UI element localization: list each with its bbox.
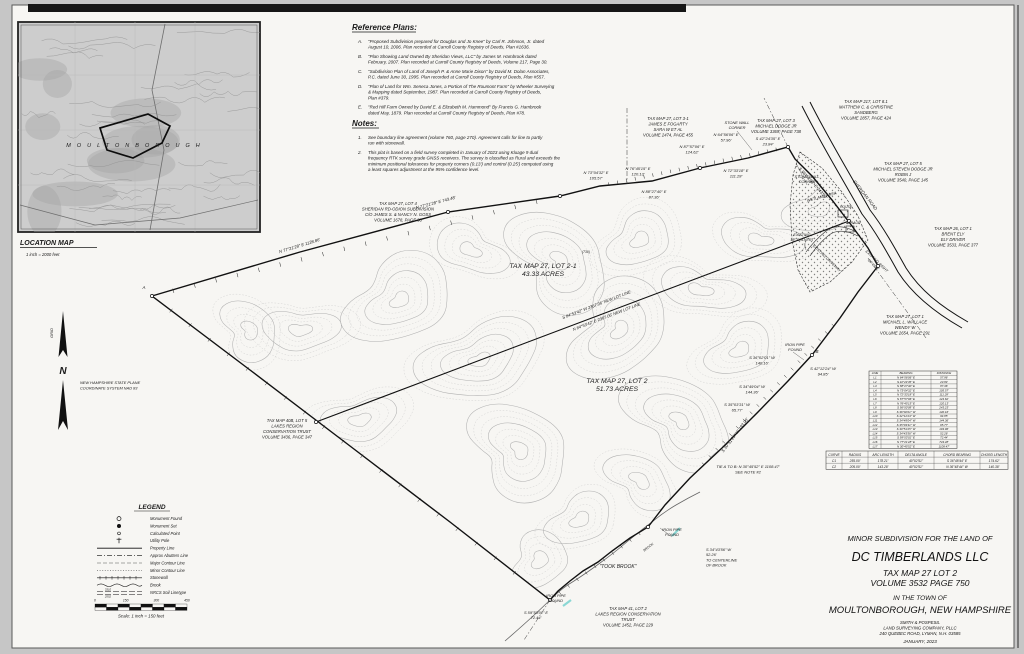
- map-label-line: "TOOK BROOK": [599, 564, 636, 570]
- map-label-line: TAX MAP 27, LOT 2: [586, 378, 647, 385]
- map-label-line: TAX MAP 27, LOT 3: [757, 118, 795, 123]
- scale-bar-tick: 450: [184, 599, 190, 603]
- notes-item-line: frequency RTK survey grade GNSS receiver…: [368, 156, 560, 161]
- legend-symbol-circle-filled: [117, 524, 121, 528]
- monument-marker: [810, 353, 813, 356]
- map-label-line: S 36°02'01" W: [749, 355, 776, 360]
- map-label-line: CONSERVATION TRUST: [263, 429, 311, 434]
- legend-soil-bottom: 2552: [104, 594, 112, 598]
- map-label-line: SARA W ET AL: [653, 127, 683, 132]
- map-label-line: TAX MAP 26, LOT 1: [934, 226, 972, 231]
- notes-item-id: 1.: [358, 135, 362, 140]
- monument-marker: [314, 420, 317, 423]
- line_table-cell: L17: [873, 444, 878, 448]
- map-label-line: OF BROOK: [706, 563, 727, 568]
- map-label-line: MICHAEL STEVEN DODGE JR: [873, 167, 932, 172]
- map-label-line: FOUND: [549, 598, 563, 603]
- curve_table-cell: 174.62': [989, 459, 1000, 463]
- map-label-line: TAX MAP 27, LOT 3-1: [647, 116, 688, 121]
- legend-item-label: Major Contour Line: [150, 560, 186, 565]
- scale-bar-cell: [141, 604, 153, 607]
- map-label-line: ELY DRIVER: [941, 237, 965, 242]
- scale-bar-cell: [95, 604, 107, 607]
- map-label: TAX MAP 40B, LOT 5LAKES REGIONCONSERVATI…: [262, 418, 313, 440]
- location-map-scale: 1 inch = 2000 feet: [26, 252, 60, 257]
- title-surveyor-3: 240 QUEBEC ROAD, LYMAN, N.H. 03585: [878, 631, 961, 636]
- datum-line-2: COORDINATE SYSTEM NAD 83: [80, 385, 138, 390]
- map-label-line: LAKES REGION: [271, 424, 303, 429]
- legend-item-label: Property Line: [150, 546, 175, 551]
- plat-sheet: MOULTONBOROUGH LOCATION MAP 1 inch = 200…: [0, 0, 1024, 654]
- curve_table-cell: S 36°48'44" E: [947, 459, 968, 463]
- map-label-line: VOLUME 2654, PAGE 291: [880, 331, 930, 336]
- scale-bar-tick: 150: [123, 599, 129, 603]
- monument-marker: [446, 210, 449, 213]
- map-label-line: N 72°33'18" E: [724, 168, 749, 173]
- map-label-line: (730): [582, 250, 590, 254]
- reference_plans-item-line: "Proposed Subdivision prepared for Dougl…: [368, 39, 545, 44]
- map-label-line: 120.13': [632, 171, 645, 176]
- map-label-line: N 87°57'06" E: [680, 144, 705, 149]
- reference_plans-item-line: Plan #379.: [368, 95, 390, 100]
- map-label-line: B: [815, 349, 818, 354]
- reference_plans-item-line: "Subdivision Plan of Land of Joseph P. &…: [368, 69, 550, 74]
- north-arrow-grid-label: GRID: [49, 328, 54, 338]
- curve_table-cell: 140.38': [989, 465, 1000, 469]
- map-label: A: [141, 285, 145, 290]
- curve_table-cell: 205.00': [849, 465, 861, 469]
- notes-item-line: This plat is based on a field survey com…: [368, 150, 539, 155]
- legend-title: LEGEND: [138, 504, 165, 511]
- notes-heading: Notes:: [352, 119, 377, 128]
- map-label-line: TAX MAP 41, LOT 2: [609, 606, 647, 611]
- reference_plans-item-line: "Plan Showing Land Owned By Sheridan Vie…: [368, 54, 537, 59]
- map-label-line: TAX MAP 27, LOT 1: [886, 314, 924, 319]
- reference_plans-item-line: dated May, 1879. Plan recorded at Carrol…: [368, 110, 525, 115]
- map-label-line: 18" CULVERT: [790, 238, 814, 242]
- reference_plans-item-id: E.: [358, 105, 362, 110]
- title-line1: MINOR SUBDIVISION FOR THE LAND OF: [847, 534, 992, 543]
- map-label-line: EXISTING: [793, 233, 810, 237]
- map-label-line: CORNER: [799, 179, 816, 184]
- curve_table-cell: 40°02'51": [909, 465, 924, 469]
- map-label-line: A: [141, 285, 145, 290]
- scale-bar-cell: [153, 607, 165, 610]
- legend-item-label: Approx Abutters Line: [149, 553, 189, 558]
- legend-item-label: Minor Contour Line: [150, 568, 186, 573]
- map-label-line: VOLUME 1452, PAGE 229: [603, 623, 654, 628]
- map-label-line: MICHAEL DODGE JR: [755, 124, 796, 129]
- curve_table-cell: N 36°48'44" W: [946, 465, 968, 469]
- map-label-line: N 73°04'32" E: [584, 170, 609, 175]
- map-label-line: TAX MAP 40B, LOT 5: [267, 418, 308, 423]
- map-label-line: 140.16': [756, 360, 769, 365]
- map-label: HOUSE: [840, 205, 853, 209]
- scale-bar-cell: [164, 604, 176, 607]
- map-label-line: 23.84': [762, 141, 774, 146]
- scale-bar-cell: [95, 607, 107, 610]
- map-label-line: TAX MAP 27, LOT 5: [884, 161, 922, 166]
- reference_plans-heading: Reference Plans:: [352, 23, 417, 32]
- map-label-line: 65.77': [732, 407, 743, 412]
- legend-item-label: Utility Pole: [150, 538, 170, 543]
- curve_table-header: DELTA ANGLE: [905, 453, 928, 457]
- map-label-line: MICHAEL L. WALLACE: [883, 320, 928, 325]
- location-map-shading: [87, 148, 144, 174]
- legend-item-label: Monument Set: [150, 523, 177, 528]
- legend-item-label: NRCS Soil Linetype: [150, 590, 187, 595]
- map-label-line: N 64°56'06" E: [714, 132, 739, 137]
- map-label-line: 57.96': [721, 137, 732, 142]
- map-label-line: VOLUME 3533, PAGE 377: [928, 243, 979, 248]
- scale-bar-tick: 0: [94, 599, 96, 603]
- scale-bar-cell: [118, 607, 130, 610]
- legend-item-label: Calculated Point: [150, 531, 181, 536]
- legend-item-label: Stonewall: [150, 575, 168, 580]
- map-label: (730): [582, 250, 590, 254]
- notes-item-line: minimum positional tolerances for proper…: [368, 161, 554, 166]
- map-label-line: N 76°45'15" E: [626, 166, 651, 171]
- map-label-line: 124.62': [686, 149, 699, 154]
- scale-bar-cell: [164, 607, 176, 610]
- curve_table-cell: C1: [832, 459, 836, 463]
- map-label-line: GARAGE: [846, 221, 861, 225]
- curve_table-header: CHORD BEARING: [943, 453, 971, 457]
- map-label-line: 72.44': [531, 615, 542, 620]
- map-label-line: 105.57': [590, 175, 603, 180]
- title-surveyor-2: LAND SURVEYING COMPANY, PLLC: [883, 626, 957, 631]
- map-label-line: 111.28': [730, 173, 743, 178]
- reference_plans-item-line: "Plan of Land for Wm. Seneca Jones, a Po…: [368, 84, 555, 89]
- notes-item-line: a least squares adjustment at the 95% co…: [368, 167, 479, 172]
- map-label-line: 43.33 ACRES: [522, 271, 565, 278]
- line-table: LINEBEARINGDISTANCEL1N 64°56'06" E57.96'…: [869, 371, 957, 448]
- reference_plans-item-id: D.: [358, 84, 363, 89]
- title-date: JANUARY, 2023: [902, 639, 937, 644]
- map-label-line: FOUND: [665, 532, 679, 537]
- legend-soil-top: 3310: [105, 588, 112, 592]
- reference_plans-item-line: August 10, 2006. Plan recorded at Carrol…: [367, 45, 530, 50]
- reference_plans-item-line: February, 2007. Plan recorded at Carroll…: [368, 60, 548, 65]
- map-label: B: [815, 349, 818, 354]
- legend-scale-text: Scale: 1 inch = 150 feet: [118, 614, 165, 619]
- monument-marker: [558, 194, 561, 197]
- title-surveyor-1: SMITH & POSPESIL: [900, 620, 940, 625]
- curve_table-header: CHORD LENGTH: [981, 453, 1008, 457]
- map-label-line: BRENT ELY: [942, 232, 966, 237]
- datum-line-1: NEW HAMPSHIRE STATE PLANE: [80, 380, 141, 385]
- location-map-town-label: MOULTONBOROUGH: [66, 143, 205, 149]
- curve_table-cell: 255.00': [849, 459, 861, 463]
- monument-marker: [646, 525, 649, 528]
- title-town-intro: IN THE TOWN OF: [893, 595, 948, 602]
- curve_table-cell: 178.21': [878, 459, 889, 463]
- scale-bar-cell: [118, 604, 130, 607]
- map-label-line: S 42°12'24" W: [810, 366, 837, 371]
- map-label-line: JAMES E FOGARTY: [647, 122, 688, 127]
- line_table-cell: 1108.47': [939, 444, 950, 448]
- map-label-line: VOLUME 1678, PAGE 33: [374, 218, 422, 223]
- map-label-line: 94.85': [818, 371, 829, 376]
- legend-item-label: Monument Found: [150, 516, 183, 521]
- title-lot: TAX MAP 27 LOT 2: [883, 568, 957, 578]
- curve_table-header: ARC LENGTH: [871, 453, 894, 457]
- monument-marker: [786, 145, 789, 148]
- map-label-line: VOLUME 2474, PAGE 455: [643, 133, 694, 138]
- curve_table-cell: 143.28': [878, 465, 889, 469]
- map-label-line: CORNER: [729, 125, 746, 130]
- legend-item-label: Brook: [150, 583, 162, 588]
- sheet-top-edge-bar: [28, 4, 686, 12]
- map-label-line: S 42°24'35" E: [756, 136, 781, 141]
- curve_table-header: CURVE: [828, 453, 840, 457]
- map-label-line: FOUND: [788, 347, 802, 352]
- scale-bar-cell: [153, 604, 165, 607]
- map-label-line: WENDY W: [895, 325, 917, 330]
- map-label-line: N 88°27'40" E: [642, 189, 667, 194]
- title-owner: DC TIMBERLANDS LLC: [852, 550, 990, 564]
- map-label-line: VOLUME 2857, PAGE 424: [841, 116, 892, 121]
- map-label-line: 51.73 ACRES: [596, 386, 639, 393]
- map-label: GARAGE: [846, 221, 861, 225]
- scale-bar-cell: [176, 604, 188, 607]
- reference_plans-item-line: & Mapping dated September, 1987. Plan re…: [368, 90, 541, 95]
- map-label-line: VOLUME 3540, PAGE 145: [878, 178, 929, 183]
- location-map-shading: [25, 113, 60, 140]
- map-label-line: ROBIN J: [895, 172, 912, 177]
- scale-bar-cell: [107, 607, 119, 610]
- location-map-title: LOCATION MAP: [20, 240, 74, 247]
- map-label-line: MATTHEW C. & CHRISTINE: [839, 105, 893, 110]
- scale-bar-cell: [107, 604, 119, 607]
- reference_plans-item-line: "Red Hill Farm Owned by David E. & Eliza…: [368, 105, 542, 110]
- monument-marker: [150, 294, 153, 297]
- reference_plans-item-id: C.: [358, 69, 363, 74]
- curve_table-cell: C2: [832, 465, 836, 469]
- line_table-cell: N 30°45'52" E: [897, 444, 915, 448]
- scale-bar-cell: [130, 607, 142, 610]
- scale-bar-cell: [130, 604, 142, 607]
- monument-marker: [698, 166, 701, 169]
- map-label-line: VOLUME 3369, PAGE 738: [751, 129, 802, 134]
- reference_plans-item-id: A.: [357, 39, 362, 44]
- map-label-line: HOUSE: [840, 205, 853, 209]
- curve_table-cell: 40°02'51": [909, 459, 924, 463]
- map-label-line: SANDBERG: [854, 110, 878, 115]
- map-label-line: TRUST: [621, 617, 635, 622]
- map-label-line: TAX MAP 217, LOT 8.1: [844, 99, 888, 104]
- scale-bar-tick: 300: [153, 599, 159, 603]
- map-label-line: C/O JAMES S. & NANCY N. GOSS: [365, 212, 431, 217]
- map-label-line: S 34°49'04" W: [739, 384, 766, 389]
- title-town: MOULTONBOROUGH, NEW HAMPSHIRE: [829, 605, 1012, 616]
- curve_table-header: RADIUS: [849, 453, 862, 457]
- notes-item-id: 2.: [357, 150, 362, 155]
- map-label-line: VOLUME 3436, PAGE 347: [262, 435, 313, 440]
- map-label-line: TAX MAP 27, LOT 4: [379, 201, 417, 206]
- location-map-shading: [43, 70, 72, 98]
- scale-bar-cell: [176, 607, 188, 610]
- map-label-line: SEE NOTE #2: [735, 469, 762, 474]
- map-label: "TOOK BROOK": [599, 564, 636, 570]
- map-label-line: 87.36': [649, 194, 660, 199]
- notes-item-line: run with stonewall.: [368, 141, 405, 146]
- scale-bar-cell: [141, 607, 153, 610]
- curve-table: CURVERADIUSARC LENGTHDELTA ANGLECHORD BE…: [826, 451, 1008, 469]
- map-label-line: TIE A TO B: N 30°45'52" E 1108.47': [716, 464, 779, 469]
- location-map-shading: [132, 125, 180, 154]
- title-volume: VOLUME 3532 PAGE 750: [870, 578, 969, 588]
- map-label-line: TAX MAP 27, LOT 2-1: [509, 263, 576, 270]
- reference_plans-item-line: P.C. dated June 30, 1995. Plan recorded …: [368, 75, 545, 80]
- north-arrow-n: N: [59, 366, 67, 377]
- map-label: TAX MAP 27, LOT 3MICHAEL DODGE JRVOLUME …: [751, 118, 802, 134]
- map-label-line: S 35°03'31" W: [724, 402, 751, 407]
- notes-item-line: See boundary line agreement (volume 760,…: [368, 135, 543, 140]
- map-label-line: LAKES REGION CONSERVATION: [595, 612, 661, 617]
- map-label-line: 144.36': [746, 389, 759, 394]
- reference_plans-item-id: B.: [358, 54, 362, 59]
